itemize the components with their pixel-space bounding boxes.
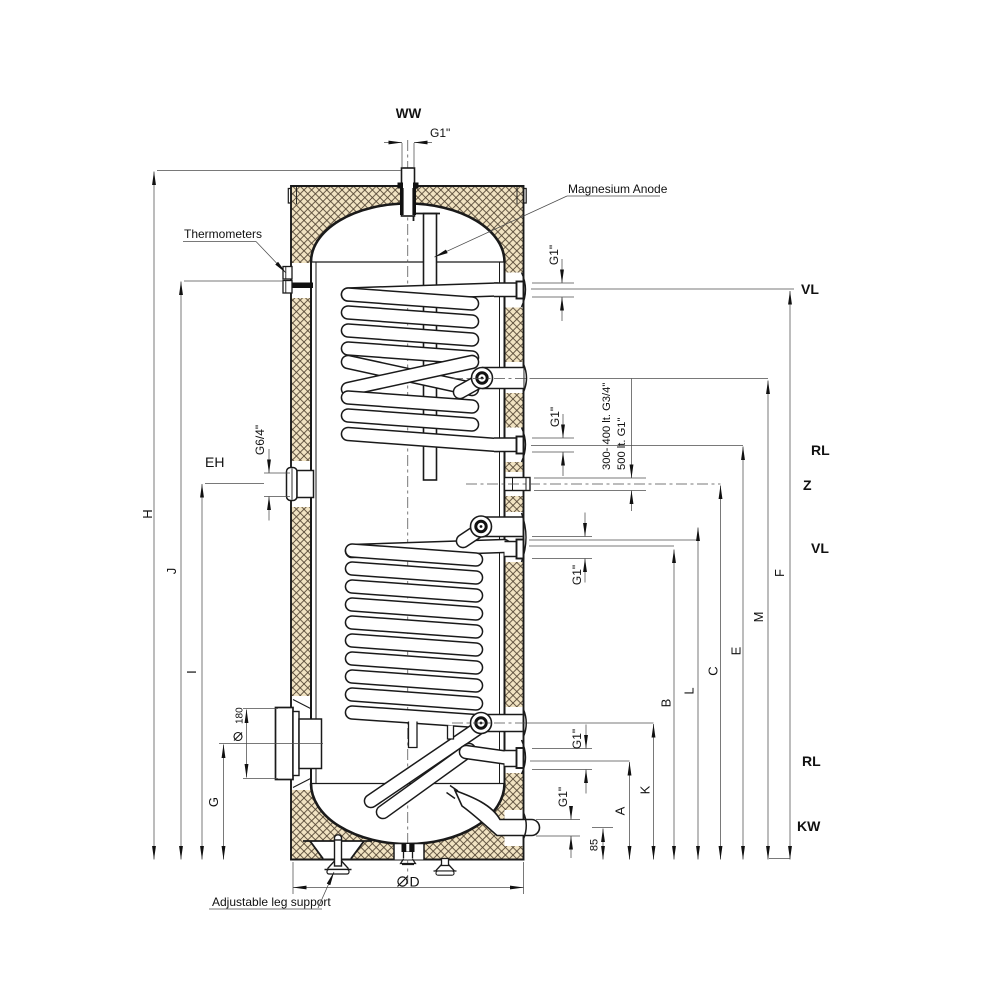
svg-text:EH: EH <box>205 454 224 470</box>
svg-text:Z: Z <box>803 477 812 493</box>
svg-text:C: C <box>706 666 721 675</box>
svg-text:VL: VL <box>811 540 829 556</box>
svg-text:RL: RL <box>811 442 830 458</box>
svg-text:L: L <box>682 687 697 694</box>
svg-text:G1": G1" <box>547 245 561 265</box>
svg-text:M: M <box>751 612 766 623</box>
svg-text:G6/4": G6/4" <box>253 425 267 455</box>
svg-text:G1": G1" <box>430 126 450 140</box>
svg-text:G1": G1" <box>548 407 562 427</box>
svg-text:WW: WW <box>396 106 422 121</box>
svg-text:G: G <box>206 797 221 807</box>
svg-text:K: K <box>638 785 653 794</box>
svg-text:J: J <box>164 568 179 575</box>
svg-text:B: B <box>659 699 674 708</box>
svg-text:A: A <box>613 806 628 815</box>
svg-text:F: F <box>772 569 787 577</box>
svg-text:D: D <box>410 874 420 890</box>
svg-text:500 lt. G1": 500 lt. G1" <box>616 417 628 470</box>
svg-text:85: 85 <box>589 839 601 851</box>
svg-text:RL: RL <box>802 753 821 769</box>
svg-text:G1": G1" <box>570 565 584 585</box>
svg-text:Magnesium Anode: Magnesium Anode <box>568 182 668 196</box>
svg-text:300- 400 lt. G3/4": 300- 400 lt. G3/4" <box>601 383 613 470</box>
svg-text:KW: KW <box>797 818 821 834</box>
svg-text:I: I <box>184 670 199 674</box>
svg-text:G1": G1" <box>570 729 584 749</box>
svg-text:Adjustable leg support: Adjustable leg support <box>212 895 331 909</box>
svg-text:Thermometers: Thermometers <box>184 227 262 241</box>
svg-text:G1": G1" <box>556 787 570 807</box>
svg-text:VL: VL <box>801 281 819 297</box>
svg-text:E: E <box>729 646 744 655</box>
svg-text:H: H <box>140 509 155 518</box>
svg-text:180: 180 <box>235 707 246 724</box>
